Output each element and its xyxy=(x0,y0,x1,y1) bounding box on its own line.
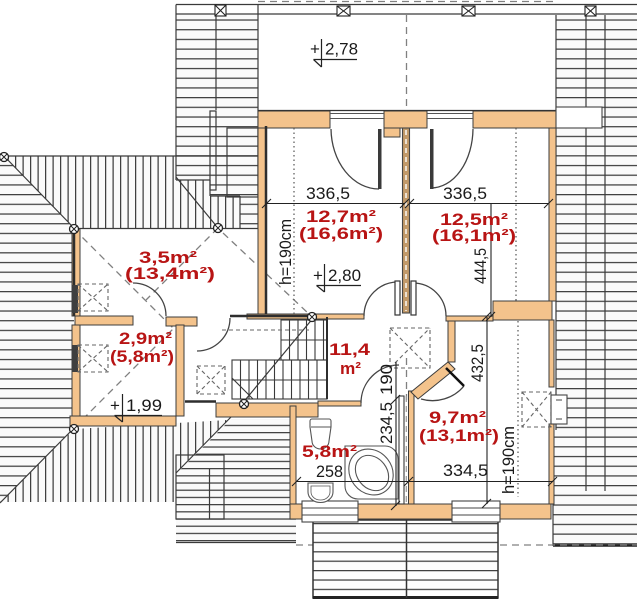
svg-text:336,5: 336,5 xyxy=(306,184,350,203)
svg-text:2,80: 2,80 xyxy=(328,266,361,285)
svg-text:234,5: 234,5 xyxy=(377,402,396,444)
svg-text:+: + xyxy=(310,40,320,59)
svg-text:190: 190 xyxy=(377,364,396,395)
svg-text:h=190cm: h=190cm xyxy=(499,426,518,494)
svg-text:336,5: 336,5 xyxy=(443,184,487,203)
svg-text:11,4: 11,4 xyxy=(329,340,371,359)
svg-text:+: + xyxy=(313,266,323,285)
svg-text:(13,1m²): (13,1m²) xyxy=(419,426,499,445)
svg-text:(16,1m²): (16,1m²) xyxy=(432,226,516,245)
svg-text:2,9m²: 2,9m² xyxy=(119,329,172,348)
svg-text:m²: m² xyxy=(340,359,361,378)
svg-text:5,8m²: 5,8m² xyxy=(302,442,357,461)
svg-text:258: 258 xyxy=(316,462,343,481)
svg-text:(13,4m²): (13,4m²) xyxy=(125,264,215,283)
svg-text:+: + xyxy=(110,396,120,415)
svg-text:444,5: 444,5 xyxy=(471,248,490,284)
svg-text:(5,8m²): (5,8m²) xyxy=(110,347,174,366)
svg-text:(16,6m²): (16,6m²) xyxy=(299,224,383,243)
svg-text:2,78: 2,78 xyxy=(325,40,358,59)
svg-text:334,5: 334,5 xyxy=(443,461,488,480)
svg-text:1,99: 1,99 xyxy=(126,396,162,415)
svg-text:9,7m²: 9,7m² xyxy=(429,408,486,427)
svg-text:432,5: 432,5 xyxy=(468,344,487,382)
svg-text:h=190cm: h=190cm xyxy=(276,219,295,285)
